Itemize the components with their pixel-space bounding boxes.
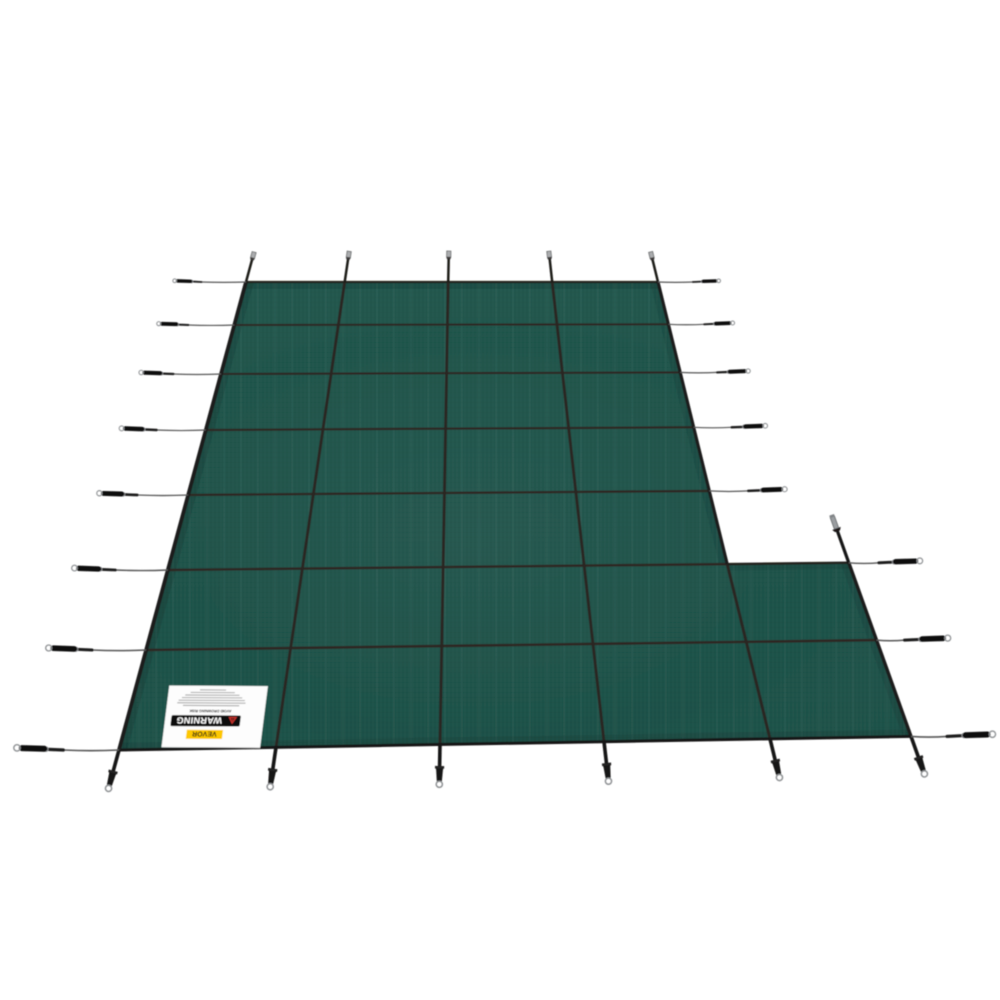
svg-text:VEVOR: VEVOR [192, 730, 217, 737]
svg-text:AVOID DROWNING RISK: AVOID DROWNING RISK [189, 709, 232, 713]
svg-text:WARNING: WARNING [176, 715, 223, 725]
